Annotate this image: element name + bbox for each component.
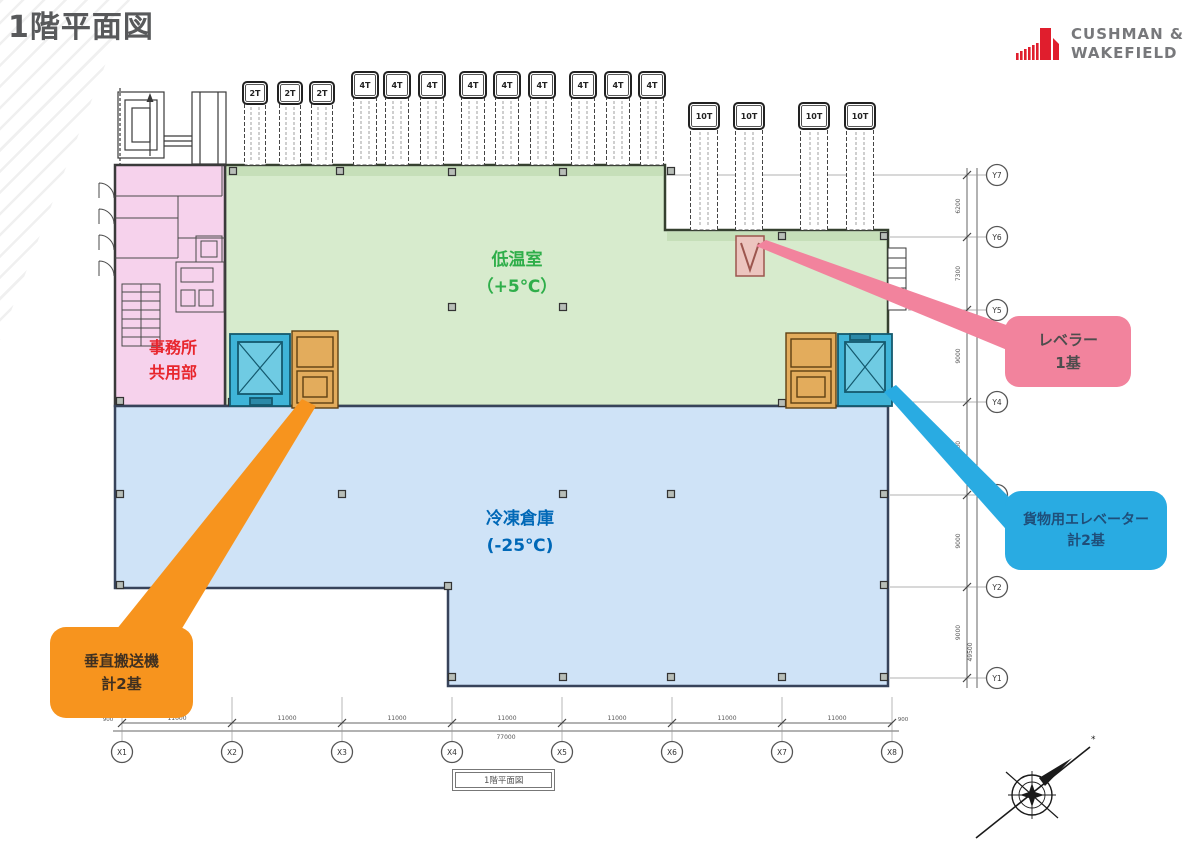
column-marker: [668, 674, 675, 681]
x-grid-label: X5: [557, 748, 567, 757]
column-marker: [560, 674, 567, 681]
column-marker: [668, 491, 675, 498]
truck-body: [801, 127, 828, 230]
column-marker: [881, 233, 888, 240]
truck-4t: 4T: [352, 72, 378, 165]
truck-10t: 10T: [845, 103, 875, 230]
column-marker: [449, 674, 456, 681]
truck-body: [245, 102, 266, 165]
column-marker: [881, 674, 888, 681]
truck-10t: 10T: [734, 103, 764, 230]
drawing-caption-box: 1階平面図: [452, 769, 555, 791]
x-span-label: 11000: [497, 715, 516, 722]
truck-2t: 2T: [278, 82, 302, 165]
x-span-label: 11000: [717, 715, 736, 722]
floor-plan-page: 1階平面図 CUSHMAN & WAKEFIELD X111000X211000…: [0, 0, 1200, 844]
truck-2t: 2T: [310, 82, 334, 165]
truck-body: [691, 127, 718, 230]
leveler-callout-line1: レベラー: [1038, 329, 1098, 352]
column-marker: [337, 168, 344, 175]
column-marker: [445, 583, 452, 590]
truck-body: [421, 96, 444, 165]
x-edge-label-right: 900: [898, 717, 909, 723]
truck-capacity-label: 10T: [806, 112, 823, 121]
truck-body: [496, 96, 519, 165]
truck-4t: 4T: [460, 72, 486, 165]
column-marker: [668, 168, 675, 175]
vertical-conveyor-right: [786, 333, 836, 408]
truck-body: [312, 102, 333, 165]
truck-body: [354, 96, 377, 165]
dock-strip-right: [667, 232, 886, 241]
x-grid-label: X2: [227, 748, 237, 757]
truck-capacity-label: 4T: [646, 81, 658, 90]
leveler-callout-line2: 1基: [1055, 352, 1080, 375]
callout-leveler: レベラー 1基: [1005, 316, 1131, 387]
x-total-label: 77000: [496, 734, 515, 741]
x-span-label: 11000: [277, 715, 296, 722]
cargo-callout-line2: 計2基: [1067, 531, 1105, 552]
truck-4t: 4T: [384, 72, 410, 165]
x-span-label: 11000: [387, 715, 406, 722]
truck-capacity-label: 10T: [741, 112, 758, 121]
truck-capacity-label: 4T: [426, 81, 438, 90]
y-span-label: 7300: [955, 266, 962, 281]
truck-capacity-label: 4T: [612, 81, 624, 90]
x-grid-label: X3: [337, 748, 347, 757]
truck-10t: 10T: [799, 103, 829, 230]
truck-body: [847, 127, 874, 230]
y-span-label: 6200: [955, 198, 962, 213]
x-grid-label: X4: [447, 748, 457, 757]
truck-4t: 4T: [639, 72, 665, 165]
column-marker: [449, 169, 456, 176]
truck-10t: 10T: [689, 103, 719, 230]
truck-body: [462, 96, 485, 165]
callout-conveyor: 垂直搬送機 計2基: [50, 627, 193, 718]
truck-2t: 2T: [243, 82, 267, 165]
x-span-label: 11000: [827, 715, 846, 722]
zone-office: [115, 165, 225, 406]
truck-capacity-label: 2T: [316, 89, 328, 98]
compass-north-mark: *: [1091, 735, 1096, 745]
y-span-label: 9000: [955, 348, 962, 363]
column-marker: [881, 491, 888, 498]
truck-capacity-label: 4T: [391, 81, 403, 90]
x-grid-label: X7: [777, 748, 787, 757]
column-marker: [339, 491, 346, 498]
column-marker: [117, 491, 124, 498]
column-marker: [881, 582, 888, 589]
drawing-caption: 1階平面図: [455, 772, 552, 788]
column-marker: [117, 398, 124, 405]
truck-body: [607, 96, 630, 165]
y-grid-label: Y4: [991, 398, 1002, 407]
truck-capacity-label: 2T: [284, 89, 296, 98]
column-marker: [779, 674, 786, 681]
truck-capacity-label: 10T: [852, 112, 869, 121]
truck-capacity-label: 4T: [359, 81, 371, 90]
truck-4t: 4T: [570, 72, 596, 165]
north-compass: *: [976, 735, 1096, 838]
x-grid-label: X1: [117, 748, 127, 757]
truck-body: [572, 96, 595, 165]
truck-capacity-label: 4T: [536, 81, 548, 90]
column-marker: [560, 491, 567, 498]
truck-4t: 4T: [529, 72, 555, 165]
cargo-elevator-right: [838, 334, 892, 406]
x-grid-label: X6: [667, 748, 677, 757]
dock-leveler: [736, 236, 764, 276]
vertical-conveyor-left: [292, 331, 338, 408]
truck-4t: 4T: [419, 72, 445, 165]
x-span-label: 11000: [607, 715, 626, 722]
truck-body: [641, 96, 664, 165]
column-marker: [560, 169, 567, 176]
x-grid-label: X8: [887, 748, 897, 757]
truck-capacity-label: 10T: [696, 112, 713, 121]
dock-strip-left: [227, 167, 663, 176]
conveyor-callout-line1: 垂直搬送機: [84, 650, 159, 673]
truck-capacity-label: 2T: [249, 89, 261, 98]
y-grid-label: Y2: [991, 583, 1002, 592]
truck-body: [280, 102, 301, 165]
exterior-ramp-stairs: [118, 88, 226, 166]
column-marker: [230, 168, 237, 175]
callout-cargo: 貨物用エレベーター 計2基: [1005, 491, 1167, 570]
y-grid-label: Y6: [991, 233, 1002, 242]
truck-body: [531, 96, 554, 165]
truck-capacity-label: 4T: [501, 81, 513, 90]
truck-capacity-label: 4T: [577, 81, 589, 90]
y-grid-label: Y5: [991, 306, 1002, 315]
y-grid-label: Y1: [991, 674, 1002, 683]
column-marker: [449, 304, 456, 311]
cargo-elevator-left: [230, 334, 290, 406]
y-grid-label: Y7: [991, 171, 1002, 180]
truck-capacity-label: 4T: [467, 81, 479, 90]
truck-body: [736, 127, 763, 230]
y-total-label: 49500: [967, 642, 974, 661]
conveyor-callout-line2: 計2基: [101, 673, 141, 696]
truck-body: [386, 96, 409, 165]
column-marker: [779, 233, 786, 240]
column-marker: [117, 582, 124, 589]
truck-4t: 4T: [494, 72, 520, 165]
truck-4t: 4T: [605, 72, 631, 165]
cargo-callout-line1: 貨物用エレベーター: [1023, 510, 1149, 531]
y-span-label: 9000: [955, 625, 962, 640]
column-marker: [560, 304, 567, 311]
column-marker: [779, 400, 786, 407]
y-span-label: 9000: [955, 533, 962, 548]
